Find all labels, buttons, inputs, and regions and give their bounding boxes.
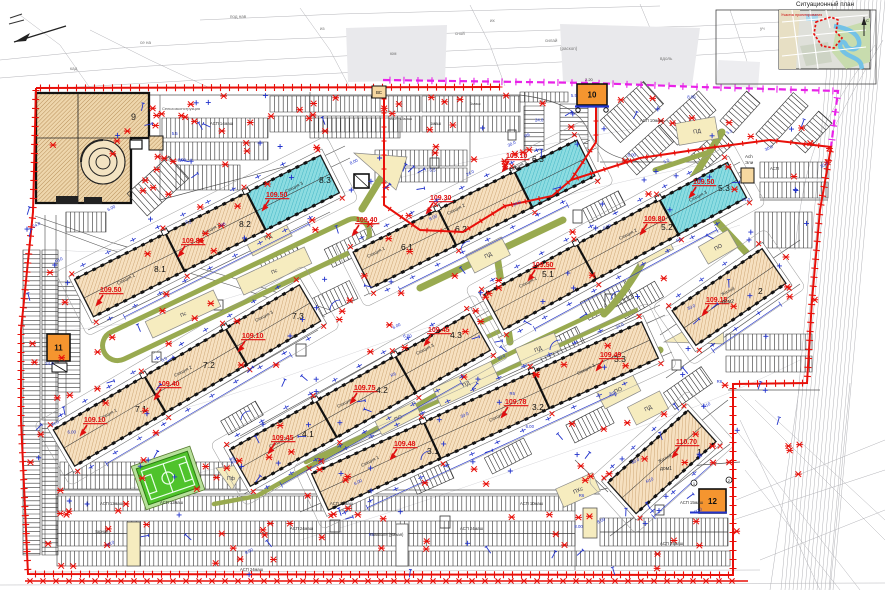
svg-text:4.3: 4.3 bbox=[450, 330, 462, 340]
svg-text:С: С bbox=[866, 18, 869, 23]
svg-text:5.3: 5.3 bbox=[718, 183, 730, 193]
svg-text:их: их bbox=[490, 18, 496, 23]
svg-text:8.00: 8.00 bbox=[628, 153, 637, 158]
svg-text:дом1: дом1 bbox=[660, 466, 672, 472]
svg-text:109.10: 109.10 bbox=[242, 333, 264, 340]
svg-text:АСП 12маш: АСП 12маш bbox=[160, 500, 184, 505]
svg-text:5.5: 5.5 bbox=[571, 93, 578, 98]
svg-text:5.5: 5.5 bbox=[172, 131, 179, 136]
svg-text:Ситуационный план: Ситуационный план bbox=[796, 1, 854, 8]
svg-text:АСП 15маш: АСП 15маш bbox=[680, 500, 704, 505]
svg-text:109.50: 109.50 bbox=[100, 287, 122, 294]
svg-text:110.70: 110.70 bbox=[676, 439, 697, 446]
svg-text:АСП 12маш: АСП 12маш bbox=[100, 501, 124, 506]
svg-text:109.80: 109.80 bbox=[644, 216, 666, 223]
svg-text:8.1: 8.1 bbox=[154, 264, 166, 274]
svg-text:1маш: 1маш bbox=[470, 101, 480, 106]
svg-text:109.10: 109.10 bbox=[84, 417, 106, 424]
svg-text:4.1: 4.1 bbox=[302, 429, 314, 439]
svg-text:3.1: 3.1 bbox=[427, 446, 439, 456]
svg-text:уч: уч bbox=[760, 26, 765, 31]
svg-text:109.50: 109.50 bbox=[532, 262, 554, 269]
svg-text:8.2: 8.2 bbox=[239, 219, 251, 229]
svg-text:109.45: 109.45 bbox=[428, 327, 450, 334]
svg-text:5.1: 5.1 bbox=[542, 269, 554, 279]
svg-text:Пф: Пф bbox=[227, 476, 235, 482]
svg-text:под нав: под нав bbox=[230, 14, 247, 19]
svg-text:АСП 14маш: АСП 14маш bbox=[390, 116, 412, 121]
svg-text:РамВоля (умная): РамВоля (умная) bbox=[370, 532, 404, 537]
svg-text:109.40: 109.40 bbox=[356, 217, 378, 224]
svg-text:сной: сной bbox=[455, 30, 465, 36]
svg-text:5.5: 5.5 bbox=[430, 168, 437, 173]
svg-text:силай: силай bbox=[545, 37, 558, 43]
svg-text:R6: R6 bbox=[510, 391, 516, 396]
svg-text:из: из bbox=[320, 26, 325, 31]
svg-text:7.1: 7.1 bbox=[135, 404, 147, 414]
svg-text:109.78: 109.78 bbox=[505, 399, 527, 406]
svg-text:109.45: 109.45 bbox=[272, 435, 294, 442]
svg-text:12: 12 bbox=[708, 497, 717, 506]
svg-text:109.48: 109.48 bbox=[394, 441, 416, 448]
svg-text:2.20: 2.20 bbox=[585, 77, 594, 82]
svg-text:АСП 14маш: АСП 14маш bbox=[210, 121, 234, 126]
svg-text:24.0: 24.0 bbox=[535, 117, 544, 122]
svg-text:8.3: 8.3 bbox=[319, 175, 331, 185]
svg-text:30.0: 30.0 bbox=[609, 391, 618, 396]
svg-text:АСП 24маш: АСП 24маш bbox=[240, 567, 264, 572]
svg-text:R6: R6 bbox=[717, 379, 723, 384]
svg-text:5.5: 5.5 bbox=[185, 220, 192, 225]
svg-text:Участок проектирования: Участок проектирования bbox=[781, 13, 822, 17]
svg-text:АСП 24маш: АСП 24маш bbox=[460, 526, 484, 531]
svg-text:8.00: 8.00 bbox=[687, 94, 696, 99]
svg-text:6.3: 6.3 bbox=[532, 154, 544, 164]
svg-text:6.00: 6.00 bbox=[68, 429, 77, 434]
svg-text:109.49: 109.49 bbox=[600, 352, 622, 359]
svg-text:АСП 24маш: АСП 24маш bbox=[290, 526, 314, 531]
svg-text:4.2: 4.2 bbox=[376, 385, 388, 395]
svg-text:Эли: Эли bbox=[745, 160, 754, 165]
svg-text:10: 10 bbox=[588, 91, 597, 100]
svg-text:АСП 10маш: АСП 10маш bbox=[640, 118, 664, 123]
svg-text:8.00: 8.00 bbox=[574, 524, 583, 529]
svg-text:дом2: дом2 bbox=[722, 299, 734, 305]
svg-text:тарная: тарная bbox=[95, 529, 108, 534]
svg-text:11: 11 bbox=[54, 344, 63, 353]
svg-text:24.0: 24.0 bbox=[742, 197, 751, 202]
svg-text:АСП: АСП bbox=[770, 166, 779, 171]
svg-text:5.2: 5.2 bbox=[661, 222, 673, 232]
svg-text:АСП 10маш: АСП 10маш bbox=[520, 501, 544, 506]
svg-text:24.0: 24.0 bbox=[45, 361, 54, 366]
svg-text:вдоль: вдоль bbox=[660, 56, 673, 61]
svg-text:9: 9 bbox=[131, 112, 136, 122]
svg-text:2: 2 bbox=[758, 286, 763, 296]
svg-text:1маш: 1маш bbox=[430, 121, 442, 126]
svg-text:109.50: 109.50 bbox=[693, 179, 715, 186]
svg-text:кад: кад bbox=[70, 66, 78, 71]
svg-text:6.00: 6.00 bbox=[526, 424, 535, 429]
svg-text:ВС: ВС bbox=[376, 90, 383, 95]
svg-text:109.50: 109.50 bbox=[266, 192, 288, 199]
svg-text:АСП 24маш: АСП 24маш bbox=[660, 541, 684, 546]
svg-text:се на: се на bbox=[140, 40, 151, 45]
svg-text:109.30: 109.30 bbox=[430, 195, 452, 202]
svg-text:8.00: 8.00 bbox=[178, 157, 187, 162]
svg-text:109.75: 109.75 bbox=[354, 385, 376, 392]
svg-text:(раскоп): (раскоп) bbox=[560, 46, 578, 51]
svg-text:7.2: 7.2 bbox=[203, 360, 215, 370]
svg-text:АСП 10маш: АСП 10маш bbox=[330, 501, 354, 506]
svg-text:3.2: 3.2 bbox=[532, 402, 544, 412]
svg-text:юм: юм bbox=[390, 51, 396, 56]
svg-text:Ach: Ach bbox=[745, 154, 753, 159]
svg-text:Сельхозконструкция: Сельхозконструкция bbox=[162, 106, 200, 111]
svg-text:R6: R6 bbox=[579, 493, 585, 498]
